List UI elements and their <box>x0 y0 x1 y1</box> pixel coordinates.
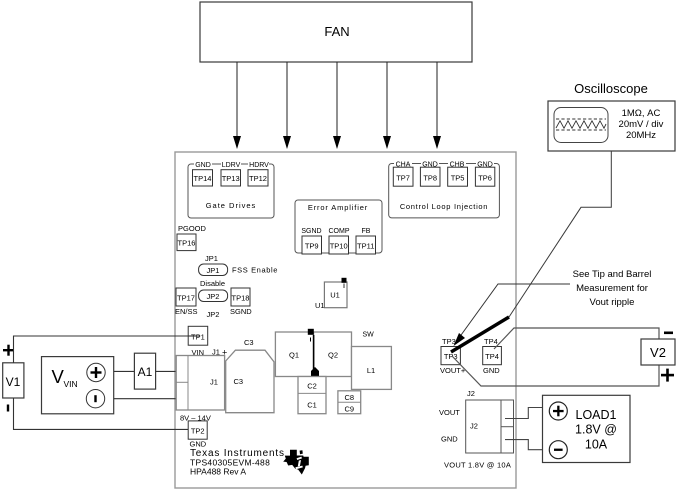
svg-text:LOAD1: LOAD1 <box>576 408 617 422</box>
svg-text:EN/SS: EN/SS <box>175 307 198 316</box>
svg-text:JP2: JP2 <box>207 292 220 301</box>
svg-text:C9: C9 <box>345 405 355 414</box>
svg-text:J1: J1 <box>212 348 220 357</box>
svg-text:TP13: TP13 <box>222 174 240 183</box>
svg-text:V2: V2 <box>650 345 666 360</box>
svg-text:HPA488 Rev A: HPA488 Rev A <box>190 467 246 477</box>
svg-text:COMP: COMP <box>329 228 350 235</box>
svg-text:U1: U1 <box>315 301 325 310</box>
svg-text:TP16: TP16 <box>178 239 196 248</box>
svg-text:TP10: TP10 <box>330 242 348 251</box>
svg-text:C1: C1 <box>307 401 317 410</box>
svg-text:C8: C8 <box>345 393 355 402</box>
svg-text:TP14: TP14 <box>194 174 212 183</box>
svg-text:Q2: Q2 <box>328 351 338 360</box>
svg-text:+: + <box>222 348 227 358</box>
svg-text:A1: A1 <box>138 365 153 379</box>
svg-text:C2: C2 <box>307 382 317 391</box>
svg-text:TP12: TP12 <box>249 174 267 183</box>
svg-text:20MHz: 20MHz <box>626 130 656 141</box>
svg-text:1MΩ, AC: 1MΩ, AC <box>622 108 661 119</box>
svg-text:PGOOD: PGOOD <box>178 224 207 233</box>
svg-text:FAN: FAN <box>324 24 349 39</box>
svg-text:U1: U1 <box>330 291 340 300</box>
svg-text:TP9: TP9 <box>305 242 319 251</box>
svg-text:SW: SW <box>363 332 375 339</box>
svg-text:VOUT+: VOUT+ <box>440 366 466 375</box>
svg-text:Control Loop Injection: Control Loop Injection <box>400 202 488 211</box>
svg-text:FSS Enable: FSS Enable <box>232 266 278 275</box>
svg-text:TP17: TP17 <box>177 294 195 303</box>
svg-text:L1: L1 <box>367 366 375 375</box>
svg-text:GND: GND <box>483 366 500 375</box>
svg-text:VOUT: VOUT <box>439 408 460 417</box>
svg-text:VOUT 1.8V @ 10A: VOUT 1.8V @ 10A <box>444 461 511 470</box>
svg-text:TP18: TP18 <box>232 294 250 303</box>
svg-text:Disable: Disable <box>200 279 225 288</box>
svg-text:SGND: SGND <box>301 228 321 235</box>
svg-text:TP11: TP11 <box>357 242 374 251</box>
svg-text:TP7: TP7 <box>396 174 410 183</box>
svg-text:Measurement for: Measurement for <box>576 283 648 294</box>
svg-text:VIN: VIN <box>64 379 78 389</box>
svg-text:C3: C3 <box>244 338 254 347</box>
svg-text:LDRV: LDRV <box>222 162 241 169</box>
svg-text:GND: GND <box>441 435 458 444</box>
svg-text:TP5: TP5 <box>451 174 465 183</box>
svg-text:TP3: TP3 <box>442 337 456 346</box>
svg-text:J2: J2 <box>470 422 478 431</box>
svg-text:Oscilloscope: Oscilloscope <box>574 81 648 96</box>
svg-text:JP1: JP1 <box>205 254 218 263</box>
svg-text:GND: GND <box>195 162 211 169</box>
svg-text:J2: J2 <box>467 389 475 398</box>
svg-text:J1: J1 <box>210 378 218 387</box>
svg-text:Gate Drives: Gate Drives <box>206 201 257 210</box>
svg-text:TP8: TP8 <box>423 174 437 183</box>
svg-text:See Tip and Barrel: See Tip and Barrel <box>573 269 652 280</box>
svg-text:JP2: JP2 <box>207 310 220 319</box>
svg-text:TP1: TP1 <box>191 332 205 341</box>
svg-text:TP4: TP4 <box>485 352 499 361</box>
svg-text:TP6: TP6 <box>478 174 492 183</box>
svg-text:10A: 10A <box>585 438 608 452</box>
svg-text:Vout ripple: Vout ripple <box>590 297 635 308</box>
svg-text:1.8V @: 1.8V @ <box>575 423 617 437</box>
svg-text:TP4: TP4 <box>484 337 498 346</box>
svg-text:Q1: Q1 <box>289 351 299 360</box>
svg-text:Error Amplifier: Error Amplifier <box>308 203 368 212</box>
svg-text:C3: C3 <box>234 377 244 386</box>
svg-text:TP2: TP2 <box>191 427 205 436</box>
svg-text:FB: FB <box>362 228 371 235</box>
svg-text:20mV / div: 20mV / div <box>619 119 664 130</box>
svg-text:V1: V1 <box>6 375 21 389</box>
svg-text:JP1: JP1 <box>207 266 220 275</box>
svg-text:SGND: SGND <box>230 307 252 316</box>
svg-text:HDRV: HDRV <box>249 162 269 169</box>
